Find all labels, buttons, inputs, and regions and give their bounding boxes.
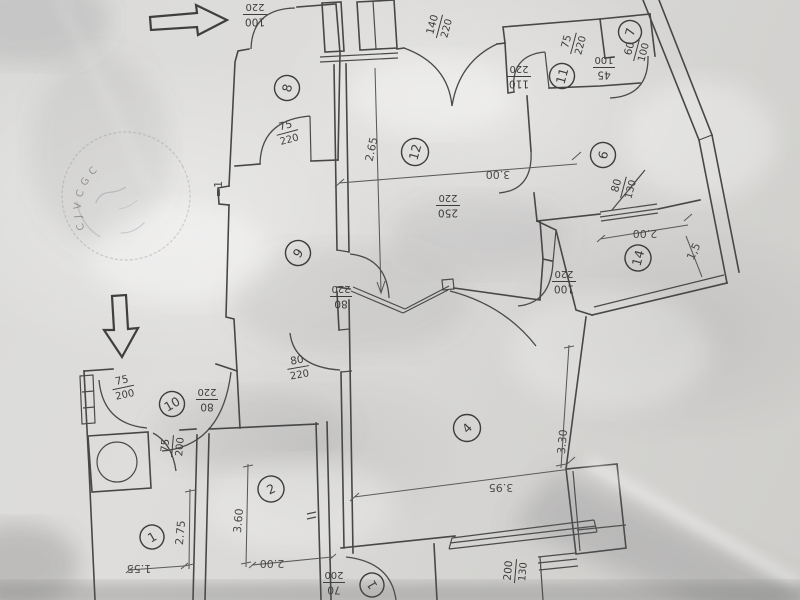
size-numerator: 200 <box>502 560 516 581</box>
door-size-label: 250220 <box>436 192 460 219</box>
dimension-text: 2.75 <box>173 520 188 546</box>
shaft-bar-divider <box>373 1 376 49</box>
room-label-8: 8 <box>272 73 303 104</box>
floor-plan-drawing: CJVCGC <box>0 0 800 600</box>
size-denominator: 220 <box>438 192 457 203</box>
size-denominator: 130 <box>517 562 530 582</box>
size-numerator: 75 <box>114 373 130 388</box>
size-numerator: 250 <box>438 207 458 219</box>
size-denominator: 220 <box>573 35 589 56</box>
room-number: 7 <box>622 26 639 38</box>
size-denominator: 220 <box>279 132 300 148</box>
size-denominator: 200 <box>114 388 135 403</box>
window-hatch <box>538 553 578 570</box>
size-numerator: 110 <box>509 78 529 90</box>
size-numerator: 100 <box>554 283 574 295</box>
dimension-text: 2.00 <box>633 227 658 240</box>
direction-arrow-down-icon <box>104 295 138 357</box>
room-number: 1 <box>145 529 159 546</box>
door-size-label: 75220 <box>558 29 589 57</box>
door-size-label: 75220 <box>273 117 301 148</box>
fold-shadow <box>510 470 800 600</box>
room-label-1: 1 <box>136 521 169 554</box>
highlight-blob <box>510 290 710 410</box>
room-label-12: 12 <box>398 135 431 168</box>
room-number: 4 <box>459 420 475 436</box>
size-denominator: 220 <box>331 283 350 294</box>
size-numerator: 80 <box>334 298 347 310</box>
room-number: 8 <box>279 82 296 94</box>
room-number: 12 <box>406 142 425 161</box>
door-size-label: 75200 <box>110 372 137 402</box>
size-denominator: 100 <box>636 42 652 63</box>
room-label-4: 4 <box>448 409 486 447</box>
wall-segment <box>658 200 700 209</box>
size-denominator: 100 <box>594 54 613 65</box>
size-denominator: 220 <box>289 368 310 382</box>
dimension-text: 3.60 <box>231 508 246 534</box>
window-size-label: 45100 <box>593 54 615 81</box>
room-label-6: 6 <box>588 140 619 171</box>
door-leaf <box>310 116 311 161</box>
wall-segment <box>600 19 605 58</box>
dimension-text: 2.00 <box>260 557 285 570</box>
wall-segment <box>397 48 404 49</box>
highlight-blob <box>345 55 515 135</box>
shaft-bar <box>322 2 344 52</box>
wall-segment <box>84 371 95 600</box>
room-label-14: 14 <box>622 242 654 274</box>
highlight-blob <box>90 205 270 305</box>
size-numerator: 80 <box>200 401 213 413</box>
size-numerator: 45 <box>597 69 610 81</box>
paper-creases <box>0 0 775 550</box>
double-wall <box>320 53 398 62</box>
size-denominator: 200 <box>174 437 187 457</box>
door-size-label: 80220 <box>285 353 311 383</box>
size-numerator: 100 <box>245 16 265 28</box>
size-numerator: 80 <box>289 354 304 368</box>
dimension-text: 3.30 <box>555 429 570 455</box>
door-size-label: 100220 <box>243 1 267 28</box>
window-size-label: 80130 <box>608 173 639 201</box>
dimension-text: 1.55 <box>127 562 152 575</box>
wall-segment <box>235 164 260 166</box>
level-mark: =1 <box>212 181 225 197</box>
corner-shadow <box>0 523 80 600</box>
dimension-text: 3.00 <box>486 168 511 181</box>
size-denominator: 200 <box>324 569 343 580</box>
size-denominator: 220 <box>439 18 455 39</box>
shadow-blob <box>0 0 110 65</box>
wall-segment <box>84 369 113 371</box>
wall-segment <box>334 65 337 250</box>
highlight-blob <box>205 460 395 550</box>
size-denominator: 130 <box>623 179 639 200</box>
room-number: 6 <box>595 149 612 161</box>
door-size-label: 140220 <box>424 11 456 41</box>
size-numerator: 140 <box>424 13 441 35</box>
dimension-text: 1,5 <box>684 241 703 262</box>
size-denominator: 220 <box>245 1 264 12</box>
floor-plan-photo: CJVCGC <box>0 0 800 600</box>
size-denominator: 220 <box>509 63 528 74</box>
wall-segment <box>527 96 531 151</box>
bath-fixture-circle <box>97 442 137 482</box>
bottom-edge-shadow <box>0 582 800 600</box>
wall-segment <box>180 429 196 430</box>
room-number: 11 <box>553 66 572 85</box>
door-leaf <box>545 52 549 88</box>
wall-segment <box>311 160 338 161</box>
dimension-text: 3.95 <box>489 481 514 494</box>
size-denominator: 220 <box>554 268 573 279</box>
door-size-label: 110220 <box>507 63 531 90</box>
window-size-label: 200130 <box>501 558 529 584</box>
door-size-label: 100220 <box>552 268 576 295</box>
paper-fold-bottom-right <box>0 462 800 600</box>
window-hatch <box>600 204 658 221</box>
size-denominator: 220 <box>197 386 216 397</box>
size-numerator: 75 <box>159 438 172 452</box>
shaft-bar <box>357 0 397 50</box>
room-number: 14 <box>629 248 648 267</box>
direction-arrow-right-icon <box>150 5 227 35</box>
radiator-symbol <box>80 375 95 424</box>
